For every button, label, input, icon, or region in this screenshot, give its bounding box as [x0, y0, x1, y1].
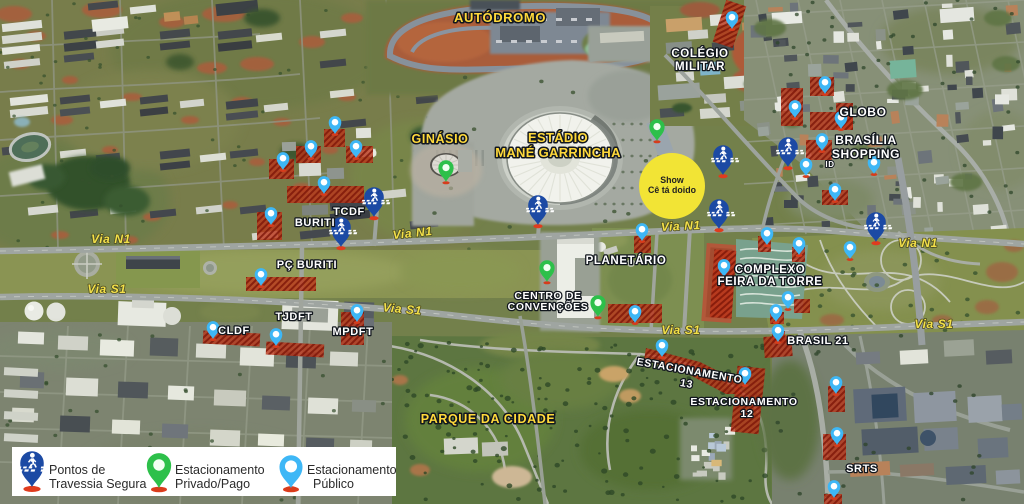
svg-text:PÇ BURITI: PÇ BURITI: [277, 259, 337, 271]
svg-text:GLOBO: GLOBO: [840, 105, 887, 119]
svg-text:13: 13: [679, 377, 694, 391]
svg-text:12: 12: [741, 408, 754, 420]
svg-text:ESTACIONAMENTO: ESTACIONAMENTO: [690, 396, 797, 408]
svg-text:Show: Show: [660, 175, 684, 185]
svg-text:Via S1: Via S1: [661, 323, 700, 337]
svg-text:TCDF: TCDF: [333, 206, 365, 218]
svg-text:TJDFT: TJDFT: [275, 311, 312, 323]
svg-text:SRTS: SRTS: [846, 463, 878, 475]
svg-text:COLÉGIO: COLÉGIO: [671, 47, 728, 60]
svg-text:MILITAR: MILITAR: [675, 61, 725, 73]
svg-text:MPDFT: MPDFT: [333, 326, 374, 338]
svg-text:Via S1: Via S1: [87, 282, 126, 296]
svg-text:CLDF: CLDF: [218, 325, 250, 337]
svg-text:AUTÓDROMO: AUTÓDROMO: [454, 10, 546, 25]
svg-text:SHOPPING: SHOPPING: [832, 147, 900, 161]
svg-text:Via S1: Via S1: [914, 317, 953, 331]
svg-text:PARQUE DA CIDADE: PARQUE DA CIDADE: [421, 412, 556, 426]
svg-text:Estacionamento: Estacionamento: [175, 463, 265, 477]
svg-text:Cê tá doido: Cê tá doido: [648, 185, 697, 195]
svg-text:Pontos de: Pontos de: [49, 463, 105, 477]
svg-text:FEIRA DA TORRE: FEIRA DA TORRE: [717, 276, 822, 288]
svg-text:CONVENÇÕES: CONVENÇÕES: [508, 300, 589, 313]
svg-text:COMPLEXO: COMPLEXO: [735, 264, 806, 276]
svg-text:ID: ID: [825, 160, 834, 169]
svg-text:Estacionamento: Estacionamento: [307, 463, 397, 477]
svg-text:BURITI: BURITI: [295, 217, 335, 229]
svg-text:ESTÁDIO: ESTÁDIO: [528, 130, 588, 145]
svg-text:Público: Público: [313, 477, 354, 491]
svg-text:BRASIL 21: BRASIL 21: [787, 335, 848, 347]
svg-text:Privado/Pago: Privado/Pago: [175, 477, 250, 491]
svg-text:PLANETÁRIO: PLANETÁRIO: [586, 254, 667, 267]
svg-text:MANÉ GARRINCHA: MANÉ GARRINCHA: [495, 145, 621, 160]
svg-text:Via N1: Via N1: [898, 236, 938, 250]
svg-text:Travessia Segura: Travessia Segura: [49, 477, 147, 491]
svg-text:GINÁSIO: GINÁSIO: [412, 131, 469, 146]
svg-text:Via N1: Via N1: [91, 232, 131, 246]
svg-text:Via N1: Via N1: [661, 218, 702, 234]
svg-text:BRASÍLIA: BRASÍLIA: [835, 132, 896, 147]
